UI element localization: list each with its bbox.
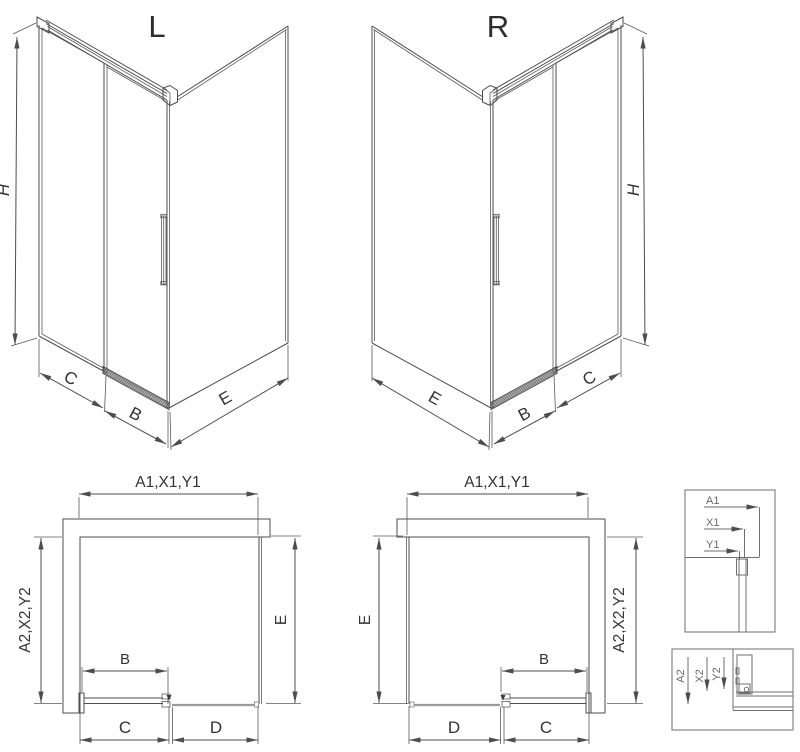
iso-right-door-handle [493,214,499,285]
iso-left-wall-panel [39,25,107,373]
iso-left-side-panel [169,26,288,408]
detail-bottom-view: A2 X2 Y2 [672,649,793,730]
shower-enclosure-diagram: L [0,0,800,752]
plan-left-dim-left: A2,X2,Y2 [17,587,34,653]
plan-left-dim-right: E [273,615,290,625]
plan-left-roller-marker [167,695,172,701]
iso-right-dim-side: E [425,387,444,409]
detail-top-dim-2: X1 [706,517,719,529]
plan-right-dim-bottom-right: C [540,718,552,737]
iso-left-dim-height: H [0,183,13,196]
plan-right-side-glass [407,537,410,704]
detail-bottom-dim-3: Y2 [711,667,723,680]
plan-right-bottom-dimensions: D C [409,706,589,744]
iso-right-dim-height: H [624,183,643,196]
iso-left-dim-door: B [126,403,145,425]
iso-right-side-panel [372,26,491,408]
plan-left-side-glass [259,537,262,704]
detail-bottom-dim-2: X2 [694,669,706,682]
iso-left-title: L [148,9,165,44]
iso-right-title: R [487,9,509,44]
plan-right-dim-door: B [539,651,549,668]
detail-top-view: A1 X1 Y1 [685,490,775,632]
iso-left-dim-side: E [216,387,235,409]
plan-left-dim-bottom-left: C [119,718,131,737]
plan-left-dim-door: B [120,651,130,668]
iso-left-door-handle [161,214,167,285]
iso-right-wall-panel [553,25,621,373]
iso-left-sliding-door [103,67,170,410]
plan-right-dim-top: A1,X1,Y1 [464,474,530,491]
plan-left-dim-top: A1,X1,Y1 [135,474,201,491]
iso-right-sliding-door [491,67,558,410]
plan-left-bottom-dimensions: C D [80,706,258,744]
iso-right-view: R [372,9,649,450]
iso-left-view: L [0,9,288,450]
detail-bottom-roller-housing [736,655,752,694]
plan-right-roller-marker [501,695,506,701]
plan-right-dim-left: E [357,615,374,625]
plan-left-dim-bottom-right: D [210,718,222,737]
plan-right-dim-bottom-left: D [448,718,460,737]
iso-right-dimensions: H C B E [372,23,649,450]
diagram-canvas: L [0,0,800,752]
plan-right-view: A1,X1,Y1 E A2,X2,Y2 B [357,474,643,744]
plan-left-view: A1,X1,Y1 E A2,X2,Y2 B [17,474,301,744]
iso-right-dim-door: B [515,403,534,425]
plan-left-wall [63,519,270,713]
detail-top-dim-3: Y1 [706,539,719,551]
detail-top-dim-1: A1 [706,495,719,507]
detail-bottom-dim-1: A2 [675,669,687,682]
plan-right-dim-right: A2,X2,Y2 [611,587,628,653]
detail-top-wall-profile [739,559,746,632]
